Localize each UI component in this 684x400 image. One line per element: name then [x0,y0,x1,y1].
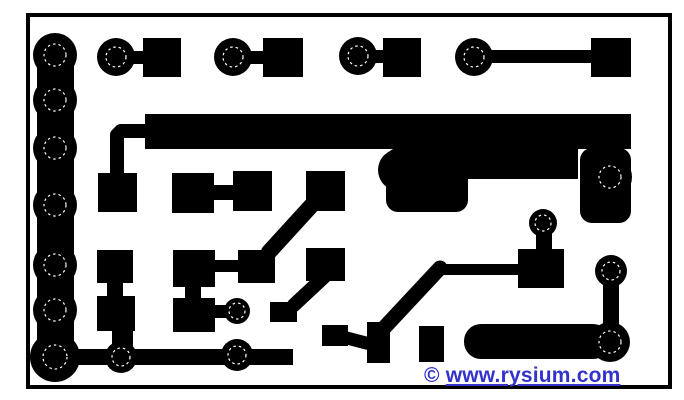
copper-trace [107,283,123,297]
copper-trace [419,326,444,362]
copper-trace [173,250,215,287]
copper-trace [591,38,631,77]
copper-trace [383,38,421,77]
copper-pad [97,38,135,76]
copper-pad [221,339,253,371]
copper-trace [212,185,235,200]
copper-trace [343,337,370,344]
copper-pad [224,298,250,324]
copper-pad [105,341,137,373]
copper-pad [339,37,377,75]
copper-trace [97,296,135,331]
copper-trace [263,38,303,77]
copyright-symbol: © [424,364,440,387]
copper-trace [456,148,578,179]
copper-trace [172,173,214,213]
copper-trace [437,264,520,275]
copper-pad [455,38,493,76]
copper-pad [33,288,77,332]
copper-trace [185,287,201,299]
copper-trace [97,250,133,283]
copper-pad [30,332,80,382]
copper-trace [233,171,272,211]
copper-trace [173,298,215,332]
copper-pad [378,149,420,191]
pcb-artwork [0,0,684,400]
copper-pad [590,322,630,362]
watermark: © www.rysium.com [424,364,620,388]
copper-pad [33,126,77,170]
copper-pad [33,78,77,122]
copper-pad [595,255,627,287]
copper-pad [33,33,77,77]
copper-trace [145,114,631,149]
copper-pad [588,155,632,199]
copper-trace [518,249,564,288]
copper-trace [143,38,181,77]
copper-trace [214,260,240,272]
copper-pad [214,38,252,76]
copper-trace [55,349,293,365]
copper-pad [529,209,557,237]
copper-trace [464,324,610,359]
copper-pad [33,243,77,287]
watermark-link[interactable]: www.rysium.com [446,364,621,387]
copper-pad [33,183,77,227]
